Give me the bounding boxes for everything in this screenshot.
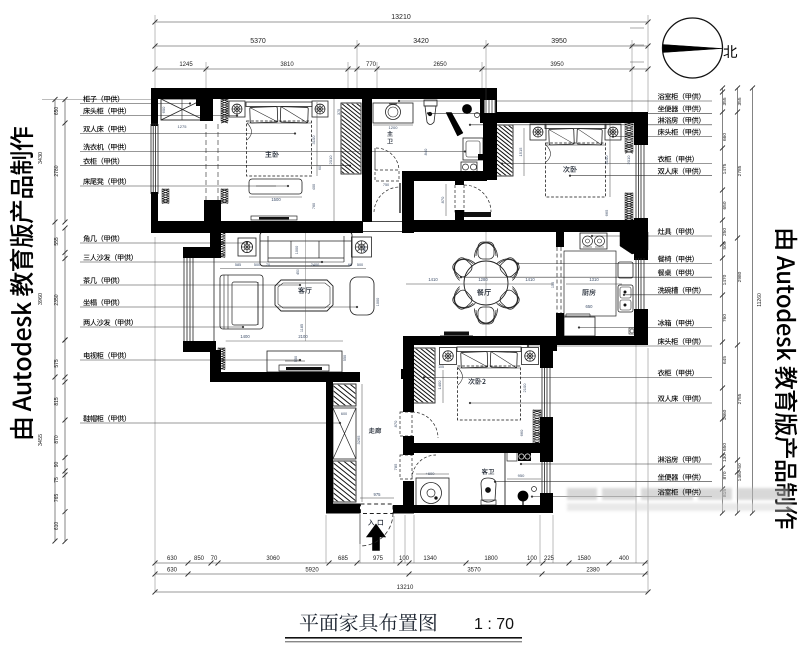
svg-text:550: 550 (343, 355, 347, 361)
svg-text:1410: 1410 (525, 277, 535, 282)
svg-text:2785: 2785 (737, 165, 743, 176)
svg-text:1310: 1310 (589, 277, 599, 282)
svg-text:1340: 1340 (423, 556, 437, 562)
svg-text:975: 975 (374, 492, 382, 497)
svg-text:585: 585 (235, 263, 241, 267)
svg-text:1470: 1470 (722, 274, 728, 285)
svg-text:950: 950 (518, 473, 525, 478)
svg-text:5370: 5370 (250, 38, 266, 45)
svg-text:630: 630 (167, 556, 178, 562)
svg-text:105: 105 (438, 365, 444, 369)
svg-text:660: 660 (722, 133, 728, 141)
svg-text:1515: 1515 (518, 147, 523, 157)
svg-text:650: 650 (722, 201, 728, 209)
svg-text:150: 150 (551, 282, 555, 288)
svg-text:500: 500 (357, 263, 363, 267)
svg-text:760: 760 (722, 314, 728, 322)
svg-text:650: 650 (722, 443, 728, 451)
svg-text:2755: 2755 (737, 393, 743, 404)
svg-text:250: 250 (722, 228, 728, 236)
svg-text:1280: 1280 (478, 277, 488, 282)
svg-text:3060: 3060 (266, 556, 280, 562)
svg-text:665: 665 (604, 209, 609, 216)
svg-text:+600: +600 (425, 471, 435, 476)
svg-text:400: 400 (619, 556, 630, 562)
svg-text:1800: 1800 (484, 556, 498, 562)
svg-text:11260: 11260 (757, 293, 763, 307)
svg-text:3570: 3570 (467, 568, 481, 574)
svg-text:610: 610 (54, 522, 60, 531)
svg-text:2380: 2380 (586, 568, 600, 574)
svg-text:1400: 1400 (240, 334, 250, 339)
svg-text:650: 650 (586, 304, 594, 309)
svg-text:765: 765 (54, 494, 60, 503)
svg-text:3950: 3950 (550, 62, 564, 68)
svg-text:500: 500 (254, 263, 260, 267)
svg-text:645: 645 (722, 356, 728, 364)
svg-text:2350: 2350 (54, 294, 60, 305)
svg-text:1410: 1410 (428, 277, 438, 282)
svg-text:600: 600 (161, 106, 166, 113)
svg-text:785: 785 (393, 463, 398, 470)
svg-text:13210: 13210 (397, 585, 414, 591)
svg-text:70: 70 (266, 263, 270, 267)
svg-text:3810: 3810 (280, 62, 294, 68)
svg-text:75: 75 (54, 477, 60, 483)
svg-text:1580: 1580 (577, 556, 591, 562)
svg-text:815: 815 (54, 397, 60, 406)
svg-text:2010: 2010 (328, 155, 333, 165)
svg-text:685: 685 (338, 556, 349, 562)
svg-text:355: 355 (722, 97, 728, 105)
svg-text:630: 630 (167, 568, 178, 574)
svg-text:100: 100 (399, 556, 410, 562)
svg-text:450: 450 (296, 269, 300, 275)
svg-text:960: 960 (363, 246, 367, 252)
svg-text:1460: 1460 (737, 470, 743, 481)
svg-text:2780: 2780 (54, 165, 60, 176)
svg-text:760: 760 (312, 203, 316, 209)
svg-text:3420: 3420 (413, 38, 429, 45)
svg-text:1185: 1185 (300, 324, 304, 332)
svg-text:870: 870 (393, 420, 398, 427)
svg-text:3960: 3960 (38, 293, 44, 305)
svg-text:1460: 1460 (722, 409, 728, 420)
svg-text:650: 650 (54, 107, 60, 116)
svg-text:555: 555 (54, 237, 60, 246)
svg-text:90: 90 (54, 462, 60, 468)
svg-text:13210: 13210 (391, 14, 411, 21)
svg-text:1200: 1200 (389, 125, 399, 130)
svg-text:370: 370 (337, 109, 341, 115)
svg-text:3100: 3100 (604, 155, 609, 165)
svg-text:2100: 2100 (298, 334, 308, 339)
svg-text:1000: 1000 (376, 298, 380, 306)
svg-text:750: 750 (383, 183, 389, 187)
svg-text:870: 870 (54, 435, 60, 444)
svg-text:575: 575 (54, 359, 60, 368)
svg-text:100: 100 (527, 556, 538, 562)
svg-text:3430: 3430 (38, 152, 44, 164)
svg-text:1400: 1400 (437, 380, 442, 390)
svg-text:770: 770 (366, 62, 377, 68)
svg-text:60: 60 (318, 166, 322, 170)
svg-text:60: 60 (348, 263, 352, 267)
svg-text:1275: 1275 (178, 124, 188, 129)
svg-text:660: 660 (519, 429, 524, 436)
svg-text:870: 870 (722, 471, 728, 479)
svg-text:3100: 3100 (311, 135, 316, 145)
svg-text:600: 600 (341, 412, 347, 416)
svg-text:1 : 70: 1 : 70 (474, 616, 514, 633)
svg-text:3950: 3950 (551, 38, 567, 45)
svg-text:2010: 2010 (626, 155, 631, 165)
svg-text:355: 355 (737, 97, 743, 105)
svg-text:2980: 2980 (737, 271, 743, 282)
svg-text:1000: 1000 (295, 246, 299, 254)
svg-text:5920: 5920 (305, 568, 319, 574)
svg-text:3265: 3265 (356, 435, 361, 445)
svg-text:2100: 2100 (522, 383, 527, 393)
svg-text:975: 975 (373, 556, 384, 562)
svg-text:400: 400 (312, 184, 316, 190)
svg-text:1245: 1245 (179, 62, 193, 68)
svg-text:3455: 3455 (38, 434, 44, 446)
svg-text:870: 870 (440, 196, 445, 203)
svg-text:550: 550 (294, 356, 298, 362)
svg-text:500: 500 (722, 241, 728, 249)
svg-text:130: 130 (722, 454, 728, 462)
svg-text:70: 70 (211, 556, 218, 562)
svg-text:850: 850 (194, 556, 205, 562)
svg-text:1500: 1500 (271, 197, 281, 202)
svg-text:840: 840 (423, 148, 428, 155)
svg-text:50: 50 (737, 463, 743, 469)
svg-text:2400: 2400 (311, 263, 319, 267)
svg-text:1475: 1475 (722, 163, 728, 174)
svg-text:2650: 2650 (433, 62, 447, 68)
